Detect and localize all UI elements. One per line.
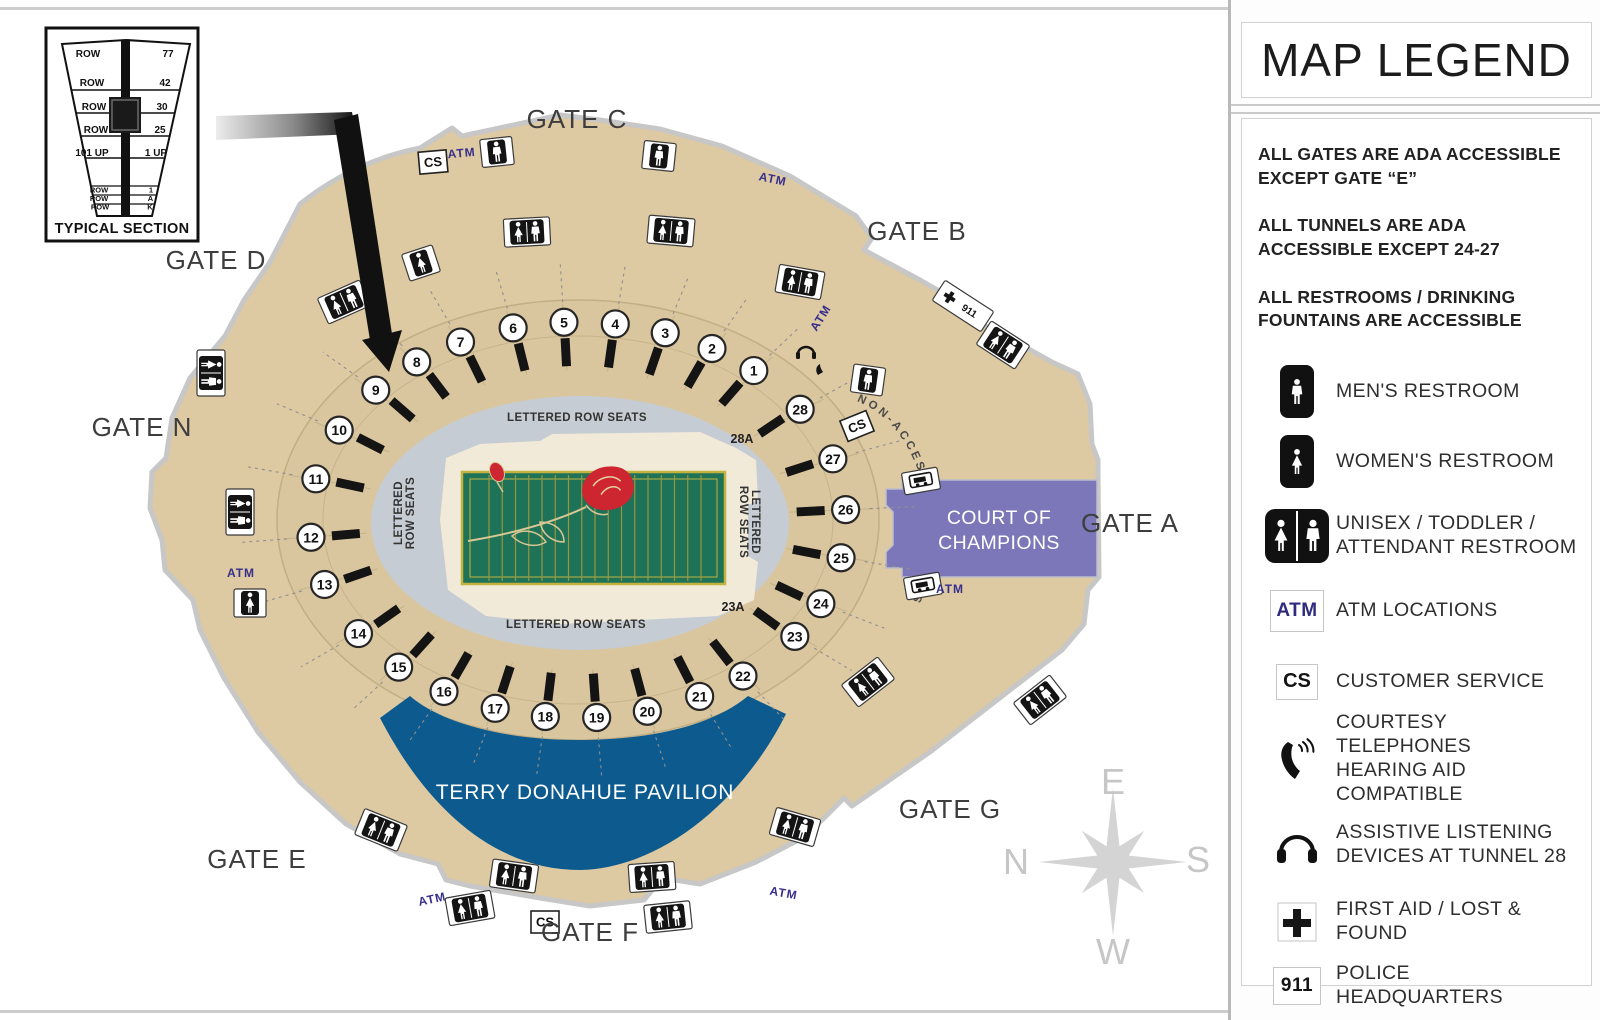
tunnel-number: 23 — [787, 628, 803, 644]
stadium-map: LETTERED ROW SEATS LETTERED ROW SEATS LE… — [0, 0, 1228, 1020]
men-marker — [642, 140, 677, 171]
legend-item: MEN'S RESTROOM — [1258, 357, 1579, 427]
both-marker — [628, 861, 676, 892]
gate-label-c: GATE C — [527, 104, 628, 134]
both-marker — [647, 215, 695, 247]
atm-icon: ATM — [1258, 590, 1336, 632]
typical-section-title: TYPICAL SECTION — [55, 221, 190, 237]
tunnel-number: 11 — [308, 471, 323, 487]
legend-item: FIRST AID / LOST & FOUND — [1258, 889, 1579, 955]
legend-item-label: COURTESY TELEPHONESHEARING AID COMPATIBL… — [1336, 711, 1579, 806]
legend-items: MEN'S RESTROOMWOMEN'S RESTROOMUNISEX / T… — [1258, 357, 1579, 1017]
inset-row-value: K — [147, 203, 153, 212]
tunnel-number: 3 — [661, 325, 669, 341]
legend-item: ATMATM LOCATIONS — [1258, 575, 1579, 647]
svg-text:COURT OF: COURT OF — [947, 507, 1051, 529]
gate-label-g: GATE G — [899, 794, 1001, 824]
lettered-row-seats-bottom: LETTERED ROW SEATS — [506, 619, 646, 631]
inset-row-label: ROW — [80, 78, 105, 89]
map-legend-panel: MAP LEGEND ALL GATES ARE ADA ACCESSIBLE … — [1228, 0, 1600, 1020]
inset-row-value: 25 — [154, 125, 166, 136]
atm-label: ATM — [417, 889, 447, 909]
gate-label-b: GATE B — [867, 216, 966, 246]
tunnel-number: 17 — [487, 700, 503, 716]
legend-item-label: FIRST AID / LOST & FOUND — [1336, 898, 1579, 946]
gate-label-f: GATE F — [541, 917, 639, 947]
assistive-listening-icon — [1258, 824, 1336, 866]
legend-item: COURTESY TELEPHONESHEARING AID COMPATIBL… — [1258, 717, 1579, 801]
compass-rose: E N S W — [1003, 761, 1210, 972]
women-marker — [234, 589, 266, 617]
court-of-champions: COURT OF CHAMPIONS — [886, 480, 1097, 577]
section-28a-label: 28A — [731, 432, 754, 446]
inset-row-label: ROW — [84, 125, 109, 136]
unisex-restroom-icon — [1258, 508, 1336, 564]
legend-item: UNISEX / TODDLER /ATTENDANT RESTROOM — [1258, 497, 1579, 575]
inset-row-value: 42 — [159, 78, 171, 89]
section-23a-label: 23A — [722, 600, 745, 614]
legend-item-label: UNISEX / TODDLER /ATTENDANT RESTROOM — [1336, 512, 1577, 560]
tunnel-number: 26 — [838, 502, 854, 518]
pavilion-label: TERRY DONAHUE PAVILION — [436, 781, 734, 804]
tunnel-number: 9 — [372, 382, 380, 398]
men-restroom-icon — [1258, 363, 1336, 421]
both-marker — [197, 350, 225, 396]
legend-item-label: ATM LOCATIONS — [1336, 599, 1498, 623]
tunnel-number: 27 — [825, 451, 841, 467]
atm-label: ATM — [447, 145, 476, 161]
tunnel-number: 24 — [813, 596, 829, 612]
tunnel-number: 18 — [538, 709, 554, 725]
tunnel-number: 2 — [708, 341, 716, 357]
legend-item: CSCUSTOMER SERVICE — [1258, 647, 1579, 717]
lettered-row-seats-left: LETTERED ROW SEATS — [393, 477, 417, 549]
legend-item: ASSISTIVE LISTENINGDEVICES AT TUNNEL 28 — [1258, 801, 1579, 889]
atm-label: ATM — [936, 582, 964, 596]
inset-row-label: 101 UP — [75, 148, 109, 159]
legend-title-box: MAP LEGEND — [1241, 22, 1592, 98]
tunnel-number: 13 — [317, 576, 333, 592]
tunnel-number: 21 — [692, 688, 708, 704]
both-marker — [644, 901, 693, 934]
tunnel-number: 4 — [611, 316, 619, 332]
tunnel-number: 22 — [735, 668, 751, 684]
both-marker — [445, 890, 495, 926]
svg-text:CS: CS — [423, 154, 443, 171]
legend-note-gates: ALL GATES ARE ADA ACCESSIBLE EXCEPT GATE… — [1258, 143, 1579, 190]
women-restroom-icon — [1258, 433, 1336, 491]
inset-row-label: ROW — [82, 102, 107, 113]
customer-service-icon: CS — [1258, 664, 1336, 700]
tunnel-number: 8 — [413, 354, 421, 370]
first-aid-icon — [1258, 901, 1336, 943]
courtesy-phone-icon — [1258, 735, 1336, 783]
both-marker — [489, 859, 538, 893]
legend-item-label: MEN'S RESTROOM — [1336, 380, 1520, 404]
police-icon: 911 — [1258, 967, 1336, 1005]
svg-text:ROW SEATS: ROW SEATS — [737, 486, 749, 558]
svg-text:ROW SEATS: ROW SEATS — [405, 477, 417, 549]
tunnel-number: 28 — [792, 401, 808, 417]
tunnel-number: 15 — [391, 659, 407, 675]
compass-s: S — [1186, 839, 1210, 880]
lettered-row-seats-top: LETTERED ROW SEATS — [507, 412, 647, 424]
inset-row-label: ROW — [76, 49, 101, 60]
legend-item-label: POLICE HEADQUARTERS — [1336, 962, 1579, 1010]
atm-label: ATM — [769, 884, 799, 903]
atm-label: ATM — [227, 566, 255, 580]
legend-item: 911POLICE HEADQUARTERS — [1258, 955, 1579, 1017]
inset-row-value: 30 — [156, 102, 168, 113]
tunnel-number: 20 — [640, 703, 656, 719]
legend-item-label: ASSISTIVE LISTENINGDEVICES AT TUNNEL 28 — [1336, 821, 1567, 869]
tunnel-number: 10 — [331, 422, 347, 438]
svg-text:LETTERED: LETTERED — [393, 481, 405, 545]
tunnel-number: 12 — [303, 529, 319, 545]
inset-row-label: ROW — [91, 203, 110, 212]
legend-item-label: CUSTOMER SERVICE — [1336, 670, 1544, 694]
legend-divider — [1231, 104, 1600, 114]
men-marker — [850, 364, 886, 396]
legend-note-tunnels: ALL TUNNELS ARE ADA ACCESSIBLE EXCEPT 24… — [1258, 214, 1579, 261]
gate-label-d: GATE D — [166, 245, 267, 275]
svg-text:CHAMPIONS: CHAMPIONS — [938, 532, 1060, 554]
stadium-map-svg: LETTERED ROW SEATS LETTERED ROW SEATS LE… — [0, 0, 1228, 1020]
compass-w: W — [1096, 931, 1130, 972]
legend-item: WOMEN'S RESTROOM — [1258, 427, 1579, 497]
legend-note-restrooms: ALL RESTROOMS / DRINKING FOUNTAINS ARE A… — [1258, 286, 1579, 333]
tunnel-number: 7 — [457, 334, 465, 350]
tunnel-number: 5 — [560, 314, 568, 330]
both-marker — [503, 217, 550, 247]
football-field — [462, 460, 725, 584]
gate-label-e: GATE E — [207, 844, 306, 874]
legend-body: ALL GATES ARE ADA ACCESSIBLE EXCEPT GATE… — [1241, 118, 1592, 986]
tunnel-number: 19 — [589, 710, 605, 726]
legend-item-label: WOMEN'S RESTROOM — [1336, 450, 1554, 474]
inset-row-value: 77 — [162, 49, 174, 60]
tunnel-number: 14 — [351, 626, 367, 642]
gate-label-n: GATE N — [92, 412, 193, 442]
inset-row-value: 1 UP — [145, 148, 168, 159]
customer-service-marker: CS — [418, 150, 448, 174]
tunnel-tick — [561, 338, 571, 366]
men-marker — [480, 136, 515, 167]
tunnel-number: 25 — [833, 550, 849, 566]
svg-text:LETTERED: LETTERED — [749, 490, 761, 554]
tunnel-tick — [796, 506, 824, 516]
both-marker — [226, 489, 254, 535]
tunnel-number: 6 — [509, 320, 517, 336]
gate-label-a: GATE A — [1081, 508, 1179, 538]
compass-n: N — [1003, 841, 1029, 882]
compass-e: E — [1101, 761, 1125, 802]
lettered-row-seats-right: LETTERED ROW SEATS — [737, 486, 761, 558]
legend-title: MAP LEGEND — [1261, 33, 1572, 87]
tunnel-number: 1 — [750, 363, 758, 379]
tunnel-number: 16 — [436, 683, 452, 699]
typical-section-inset: ROW77ROW42ROW30ROW25101 UP1 UPROW1ROWARO… — [46, 28, 198, 241]
